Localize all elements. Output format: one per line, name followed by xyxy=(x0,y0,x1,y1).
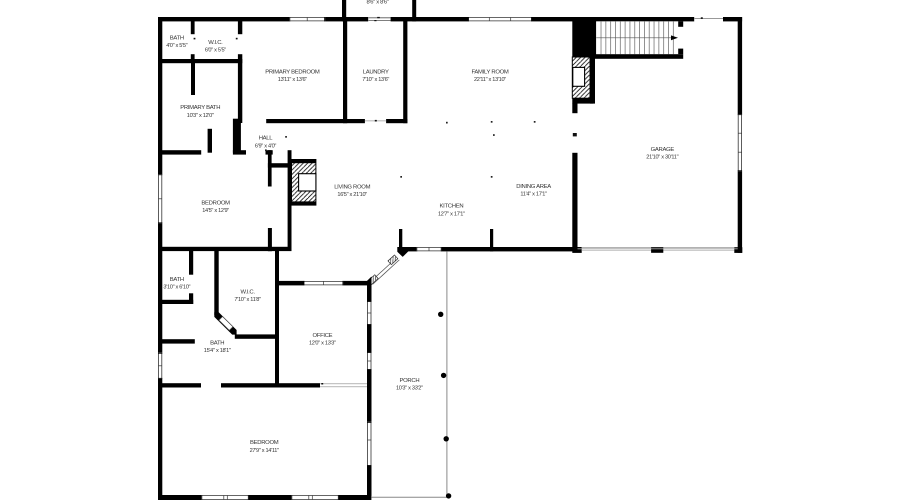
svg-text:BATH: BATH xyxy=(170,36,184,42)
svg-text:6'9" x 4'0": 6'9" x 4'0" xyxy=(255,143,276,149)
svg-text:W.I.C.: W.I.C. xyxy=(208,40,223,46)
svg-text:BEDROOM: BEDROOM xyxy=(250,440,279,446)
svg-text:3'10" x 6'10": 3'10" x 6'10" xyxy=(163,285,190,291)
svg-text:PRIMARY BEDROOM: PRIMARY BEDROOM xyxy=(265,70,320,76)
svg-text:8'6" x 8'6": 8'6" x 8'6" xyxy=(366,0,388,6)
svg-text:PORCH: PORCH xyxy=(400,378,420,384)
svg-text:12'0" x 13'3": 12'0" x 13'3" xyxy=(309,341,336,347)
svg-text:BEDROOM: BEDROOM xyxy=(201,201,230,207)
svg-text:LAUNDRY: LAUNDRY xyxy=(363,70,389,76)
svg-text:15'4" x 18'1": 15'4" x 18'1" xyxy=(204,348,231,354)
svg-text:PRIMARY BATH: PRIMARY BATH xyxy=(180,105,220,111)
svg-text:FAMILY ROOM: FAMILY ROOM xyxy=(471,70,508,76)
svg-text:27'9" x 14'11": 27'9" x 14'11" xyxy=(250,448,279,454)
svg-text:12'7" x 17'1": 12'7" x 17'1" xyxy=(438,211,465,217)
svg-text:BATH: BATH xyxy=(210,341,224,347)
svg-text:7'10" x 11'8": 7'10" x 11'8" xyxy=(234,297,261,303)
svg-text:BATH: BATH xyxy=(170,277,184,283)
svg-text:4'0" x 5'5": 4'0" x 5'5" xyxy=(166,43,187,49)
svg-text:7'10" x 13'6": 7'10" x 13'6" xyxy=(362,77,389,83)
svg-text:HALL: HALL xyxy=(259,136,274,142)
svg-text:16'5" x 21'10": 16'5" x 21'10" xyxy=(337,192,367,198)
svg-text:LIVING ROOM: LIVING ROOM xyxy=(334,184,370,190)
svg-text:6'0" x 5'5": 6'0" x 5'5" xyxy=(205,47,226,53)
svg-text:13'11" x 13'6": 13'11" x 13'6" xyxy=(278,77,307,83)
svg-text:21'10" x 30'11": 21'10" x 30'11" xyxy=(646,155,678,161)
svg-text:W.I.C.: W.I.C. xyxy=(240,289,255,295)
svg-text:11'4" x 17'1": 11'4" x 17'1" xyxy=(520,192,547,198)
svg-text:22'11" x 13'10": 22'11" x 13'10" xyxy=(474,77,506,83)
svg-text:DINING AREA: DINING AREA xyxy=(516,184,551,190)
svg-text:14'5" x 12'9": 14'5" x 12'9" xyxy=(202,208,229,214)
svg-text:10'3" x 12'0": 10'3" x 12'0" xyxy=(187,113,214,119)
svg-text:GARAGE: GARAGE xyxy=(651,147,675,153)
svg-text:KITCHEN: KITCHEN xyxy=(440,204,464,210)
svg-text:10'3" x 33'2": 10'3" x 33'2" xyxy=(396,385,423,391)
svg-text:OFFICE: OFFICE xyxy=(312,333,332,339)
